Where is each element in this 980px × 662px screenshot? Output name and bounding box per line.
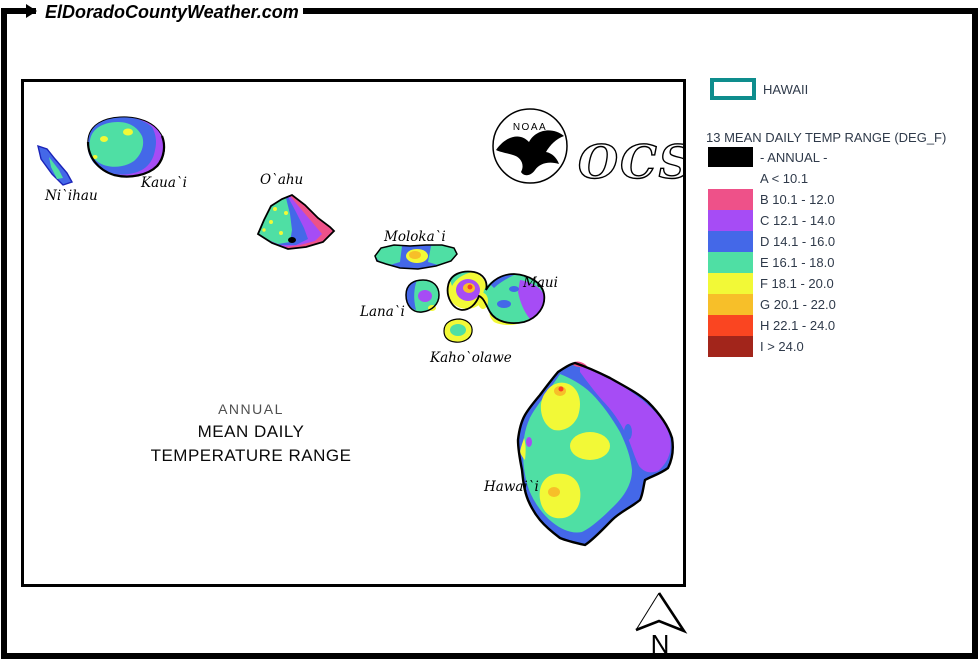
legend-label-d: D 14.1 - 16.0 (760, 234, 835, 249)
legend-label-h: H 22.1 - 24.0 (760, 318, 835, 333)
island-molokai (375, 245, 457, 269)
legend-row-f: F 18.1 - 20.0 (708, 273, 834, 294)
legend-row-d: D 14.1 - 16.0 (708, 231, 835, 252)
island-label-maui: Maui (523, 275, 558, 291)
legend-row-h: H 22.1 - 24.0 (708, 315, 835, 336)
annotation-line-annual: ANNUAL (81, 401, 421, 417)
page: { "header": { "site_title": "ElDoradoCou… (0, 0, 980, 660)
island-lanai (406, 280, 439, 312)
noaa-logo: NOAA (493, 109, 567, 183)
legend-hawaii-label: HAWAII (763, 82, 808, 97)
legend-label-i: I > 24.0 (760, 339, 804, 354)
legend-swatch-g (708, 294, 753, 315)
legend-row-g: G 20.1 - 22.0 (708, 294, 836, 315)
legend-label-b: B 10.1 - 12.0 (760, 192, 834, 207)
legend-label-f: F 18.1 - 20.0 (760, 276, 834, 291)
legend-label-a: A < 10.1 (760, 171, 808, 186)
annotation-line-mean-daily: MEAN DAILY (81, 422, 421, 442)
legend-label-annual: - ANNUAL - (760, 150, 827, 165)
legend-row-i: I > 24.0 (708, 336, 804, 357)
island-hawaii (518, 362, 673, 545)
island-kauai (88, 117, 165, 177)
north-label: N (651, 629, 670, 657)
legend-swatch-c (708, 210, 753, 231)
hawaii-map-graphic: NOAA OCS (24, 82, 683, 584)
legend-row-annual: - ANNUAL - (708, 147, 827, 167)
legend-swatch-h (708, 315, 753, 336)
legend-swatch-a (708, 168, 753, 189)
legend-row-c: C 12.1 - 14.0 (708, 210, 835, 231)
hawaii-map-panel: NOAA OCS Ni`ihau Kaua`i O`ahu Moloka`i L… (21, 79, 686, 587)
legend-swatch-annual (708, 147, 753, 167)
legend-swatch-i (708, 336, 753, 357)
legend-title: 13 MEAN DAILY TEMP RANGE (DEG_F) (706, 130, 946, 145)
map-annotation: ANNUAL MEAN DAILY TEMPERATURE RANGE (81, 401, 421, 470)
island-label-kahoolawe: Kaho`olawe (430, 350, 512, 366)
island-label-lanai: Lana`i (360, 304, 405, 320)
island-oahu (258, 195, 334, 249)
north-arrow-icon: N (628, 589, 692, 657)
island-label-kauai: Kaua`i (141, 175, 187, 191)
legend-label-c: C 12.1 - 14.0 (760, 213, 835, 228)
legend-swatch-b (708, 189, 753, 210)
ocs-wordmark: OCS (578, 135, 683, 189)
island-label-hawaii: Hawai`i (484, 479, 539, 495)
legend-row-e: E 16.1 - 18.0 (708, 252, 834, 273)
island-kahoolawe (444, 319, 472, 342)
island-label-molokai: Moloka`i (384, 229, 446, 245)
legend-hawaii-box (710, 78, 756, 100)
site-title-link[interactable]: ElDoradoCountyWeather.com (41, 2, 303, 23)
island-niihau (38, 146, 72, 185)
island-label-niihau: Ni`ihau (45, 188, 98, 204)
legend-swatch-f (708, 273, 753, 294)
legend-swatch-d (708, 231, 753, 252)
legend-row-a: A < 10.1 (708, 168, 808, 189)
legend-label-g: G 20.1 - 22.0 (760, 297, 836, 312)
legend-label-e: E 16.1 - 18.0 (760, 255, 834, 270)
north-arrow: N (628, 589, 692, 657)
header-arrow-icon (26, 4, 37, 18)
legend-row-b: B 10.1 - 12.0 (708, 189, 834, 210)
legend-swatch-e (708, 252, 753, 273)
annotation-line-temp-range: TEMPERATURE RANGE (81, 446, 421, 466)
island-label-oahu: O`ahu (260, 172, 303, 188)
